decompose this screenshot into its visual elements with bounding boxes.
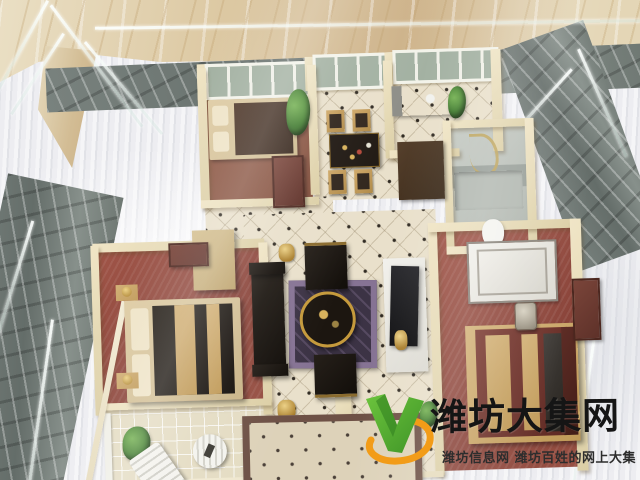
- photo-scene: 潍坊大集网 潍坊信息网 潍坊百姓的网上大集: [0, 0, 640, 480]
- kitchen-counter: [391, 84, 456, 116]
- bench-table: [314, 354, 357, 398]
- apartment-model: [78, 40, 603, 480]
- master-bedroom-door: [168, 242, 209, 267]
- bedroom2-blanket: [234, 101, 294, 155]
- bed-runner: [521, 334, 540, 430]
- kitchen-island: [397, 141, 445, 200]
- kitchen-window: [392, 47, 499, 84]
- bed-runner: [485, 335, 512, 432]
- pillow: [213, 131, 230, 151]
- dining-chair: [326, 110, 345, 133]
- floor-lantern: [514, 302, 537, 331]
- gold-decor: [278, 243, 295, 261]
- sofa-armrest: [249, 262, 285, 275]
- pillow: [212, 105, 229, 125]
- kitchen-right-wall: [490, 49, 503, 151]
- bedroom3-wardrobe: [466, 239, 558, 304]
- dining-chair: [328, 170, 347, 195]
- sofa-armrest: [252, 364, 288, 377]
- nightstand-lamp: [116, 284, 138, 301]
- bedroom3-door: [572, 278, 602, 341]
- dining-chair: [354, 169, 373, 194]
- bed-runner: [174, 305, 197, 396]
- shower-tray: [454, 170, 523, 210]
- bedroom2-door: [272, 155, 306, 208]
- pillow: [130, 308, 149, 351]
- gold-statue: [394, 330, 408, 350]
- armchair: [304, 242, 347, 290]
- bed-runner: [206, 304, 222, 394]
- nightstand-lamp: [116, 372, 138, 389]
- sofa: [251, 270, 286, 367]
- dining-window: [312, 52, 393, 90]
- entry-tile-medallion: [242, 412, 423, 480]
- dining-chair: [352, 109, 371, 132]
- dining-table: [329, 133, 380, 169]
